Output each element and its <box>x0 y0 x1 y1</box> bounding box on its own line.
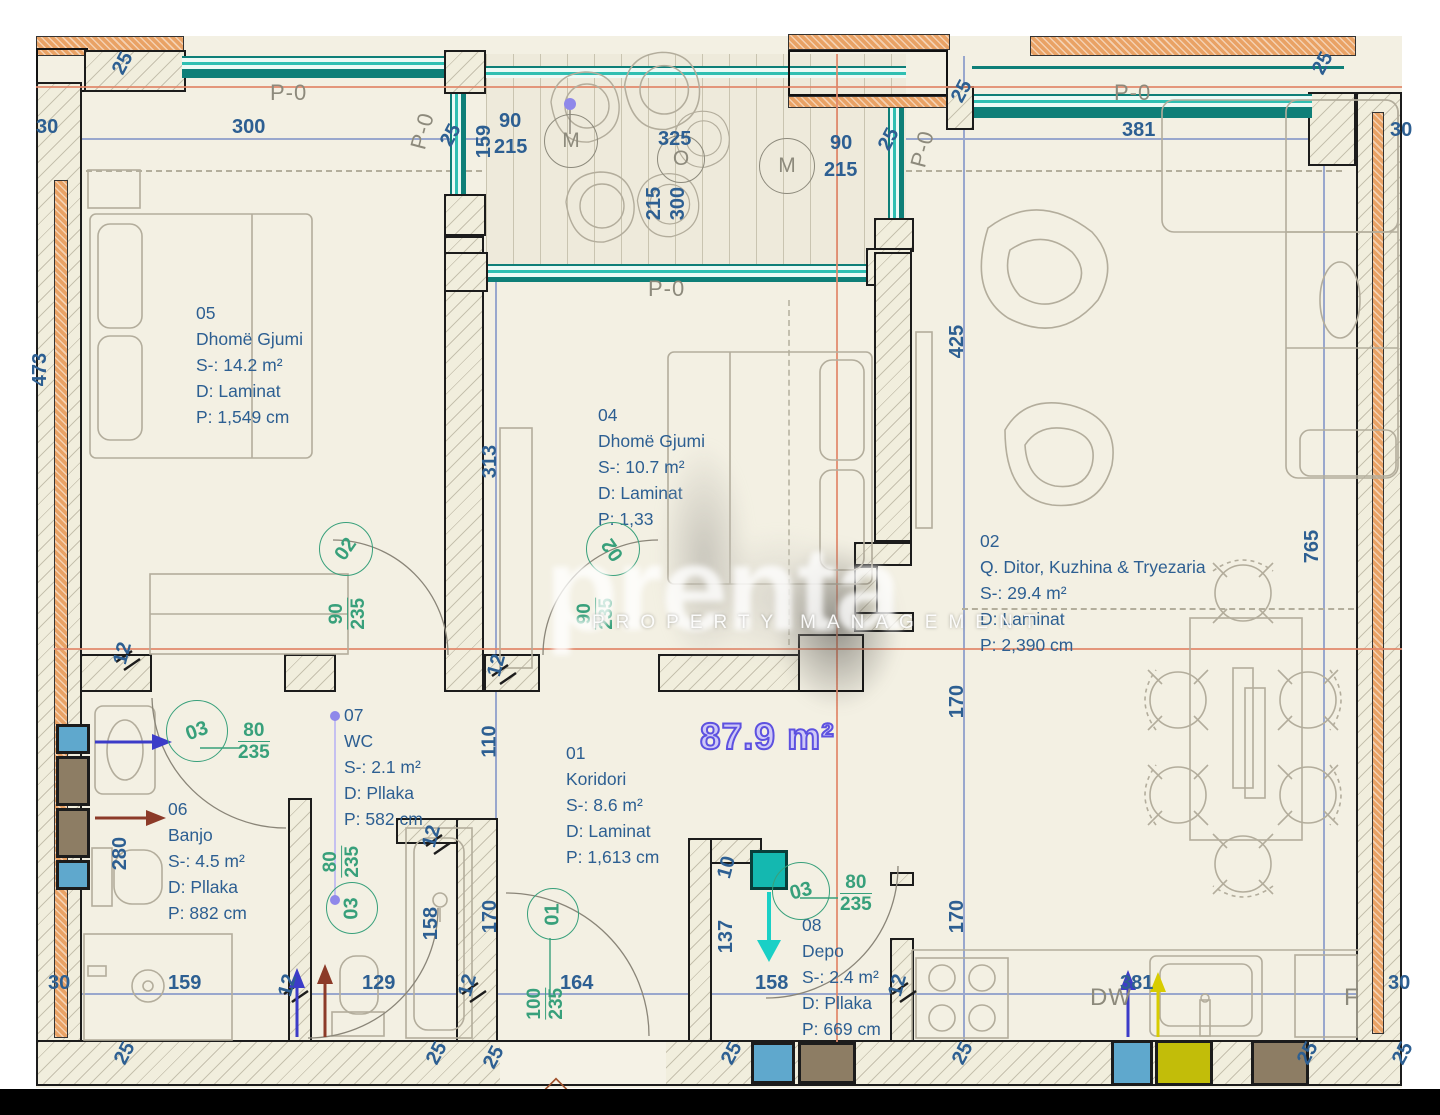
wall-segment <box>444 194 486 236</box>
door-height: 235 <box>238 741 270 763</box>
window-label: P-0 <box>1114 80 1151 106</box>
door-width: 90 <box>326 603 347 624</box>
insulation-strip <box>54 180 68 1038</box>
window <box>888 108 904 218</box>
window-label: P-0 <box>270 80 307 106</box>
room-area: S-: 10.7 m² <box>598 454 705 480</box>
door-number: 03 <box>787 877 814 905</box>
room-name: WC <box>344 728 423 754</box>
dim-label: 381 <box>1120 972 1153 995</box>
door-width: 80 <box>243 720 264 741</box>
dim-label: 280 <box>109 837 132 870</box>
dim-label: 30 <box>1390 119 1412 142</box>
wall-segment <box>1308 92 1356 166</box>
shaft-blue <box>751 1042 795 1084</box>
concrete-column <box>798 634 864 692</box>
dim-line <box>963 56 965 1040</box>
door-size: 90235 <box>326 598 370 630</box>
dim-label: 159 <box>168 972 201 995</box>
insulation-strip <box>1372 112 1384 1034</box>
room-id: 04 <box>598 402 705 428</box>
dim-label: 158 <box>755 972 788 995</box>
window <box>182 56 450 78</box>
door-tag: 01 <box>527 888 579 940</box>
wall-segment <box>288 798 312 1042</box>
room-floor: D: Pllaka <box>802 990 881 1016</box>
section-line <box>788 300 790 645</box>
shaft-brown <box>56 808 90 858</box>
dim-label: 30 <box>36 116 58 139</box>
marker-circle-m: M <box>544 114 598 168</box>
shaft-blue <box>56 860 90 890</box>
wall-segment <box>874 218 914 252</box>
dim-label: 473 <box>29 353 52 386</box>
wall-segment <box>854 542 912 566</box>
wall-segment <box>854 612 914 632</box>
dim-label: 110 <box>479 725 502 757</box>
axis-line <box>36 86 1402 88</box>
dim-label: 30 <box>48 972 70 995</box>
room-perimeter: P: 1,613 cm <box>566 844 659 870</box>
room-label-04: 04 Dhomë Gjumi S-: 10.7 m² D: Laminat P:… <box>598 402 705 532</box>
entry-opening <box>500 1042 666 1084</box>
room-label-07: 07 WC S-: 2.1 m² D: Pllaka P: 582 cm <box>344 702 423 832</box>
dim-label: 129 <box>362 972 395 995</box>
window-sill-line <box>972 66 1344 69</box>
door-height: 235 <box>347 598 369 630</box>
door-tag: 03 <box>772 862 830 920</box>
total-area: 87.9 m² <box>700 716 835 758</box>
room-area: S-: 8.6 m² <box>566 792 659 818</box>
dim-label: 215 <box>494 136 527 159</box>
door-tag: 02 <box>586 522 640 576</box>
room-id: 02 <box>980 528 1206 554</box>
shaft-brown <box>798 1042 856 1084</box>
dim-label: 313 <box>479 445 502 478</box>
wall-segment <box>658 654 800 692</box>
shaft-olive <box>1155 1040 1213 1086</box>
room-name: Dhomë Gjumi <box>196 326 303 352</box>
door-width: 80 <box>845 872 866 893</box>
shaft-blue <box>1111 1040 1153 1086</box>
door-width: 100 <box>524 988 545 1020</box>
fridge-label: F <box>1344 984 1360 1012</box>
room-floor: D: Pllaka <box>344 780 423 806</box>
dim-label: 765 <box>1301 530 1324 563</box>
insulation-strip <box>788 96 948 108</box>
door-number: 03 <box>183 716 212 745</box>
room-id: 06 <box>168 796 247 822</box>
room-id: 05 <box>196 300 303 326</box>
concrete-column <box>788 50 948 96</box>
dim-line <box>1323 92 1325 1040</box>
dim-label: 170 <box>946 900 969 933</box>
door-size: 80235 <box>238 720 270 764</box>
marker-letter: M <box>562 129 580 153</box>
insulation-strip <box>1030 36 1356 56</box>
door-axis-dot <box>330 711 340 721</box>
floor-plan: P-0 P-0 P-0 P-0 P-0 M O M DW F 05 Dhomë … <box>0 0 1440 1115</box>
room-area: S-: 4.5 m² <box>168 848 247 874</box>
room-name: Depo <box>802 938 881 964</box>
room-name: Dhomë Gjumi <box>598 428 705 454</box>
dim-label: 170 <box>946 685 969 718</box>
door-jamb <box>890 872 914 886</box>
door-number: 01 <box>542 903 565 925</box>
door-height: 235 <box>595 598 617 630</box>
dim-label: 215 <box>643 187 666 220</box>
door-height: 235 <box>840 893 872 915</box>
dim-label: 159 <box>473 125 496 158</box>
door-size: 80235 <box>840 872 872 916</box>
dim-label: 300 <box>667 187 690 220</box>
door-number: 03 <box>341 897 364 919</box>
dim-label: 90 <box>499 110 521 133</box>
wall-segment <box>874 252 912 542</box>
dim-label: 137 <box>715 920 738 953</box>
room-area: S-: 14.2 m² <box>196 352 303 378</box>
door-tag: 03 <box>326 882 378 934</box>
room-area: S-: 2.1 m² <box>344 754 423 780</box>
room-floor: D: Laminat <box>598 480 705 506</box>
dim-label: 170 <box>479 900 502 933</box>
door-width: 90 <box>574 603 595 624</box>
dim-label: 90 <box>830 132 852 155</box>
room-name: Q. Ditor, Kuzhina & Tryezaria <box>980 554 1206 580</box>
wall-segment <box>444 236 484 692</box>
room-label-02: 02 Q. Ditor, Kuzhina & Tryezaria S-: 29.… <box>980 528 1206 658</box>
room-floor: D: Laminat <box>566 818 659 844</box>
bottom-band <box>0 1089 1440 1115</box>
door-tag: 03 <box>166 700 228 762</box>
marker-circle-m: M <box>759 138 815 194</box>
room-name: Koridori <box>566 766 659 792</box>
room-label-05: 05 Dhomë Gjumi S-: 14.2 m² D: Laminat P:… <box>196 300 303 430</box>
marker-dot <box>564 98 576 110</box>
dim-label: 30 <box>1388 972 1410 995</box>
axis-line <box>836 54 838 1042</box>
room-perimeter: P: 2,390 cm <box>980 632 1206 658</box>
room-label-01: 01 Koridori S-: 8.6 m² D: Laminat P: 1,6… <box>566 740 659 870</box>
room-label-08: 08 Depo S-: 2.4 m² D: Pllaka P: 669 cm <box>802 912 881 1042</box>
room-id: 01 <box>566 740 659 766</box>
room-perimeter: P: 1,549 cm <box>196 404 303 430</box>
door-number: 02 <box>597 533 629 564</box>
insulation-strip <box>788 34 950 50</box>
wall-segment <box>854 566 878 614</box>
door-number: 02 <box>330 533 362 564</box>
room-floor: D: Laminat <box>196 378 303 404</box>
dim-label: 381 <box>1122 119 1155 142</box>
dim-line <box>36 993 1402 995</box>
dim-label: 215 <box>824 159 857 182</box>
marker-letter: M <box>778 154 796 178</box>
window-label: P-0 <box>648 276 685 302</box>
room-label-06: 06 Banjo S-: 4.5 m² D: Pllaka P: 882 cm <box>168 796 247 926</box>
wall-segment <box>284 654 336 692</box>
wall-segment <box>688 838 712 1042</box>
room-floor: D: Laminat <box>980 606 1206 632</box>
room-area: S-: 2.4 m² <box>802 964 881 990</box>
room-floor: D: Pllaka <box>168 874 247 900</box>
room-perimeter: P: 582 cm <box>344 806 423 832</box>
dim-label: 158 <box>420 907 443 940</box>
wall-segment <box>444 252 488 292</box>
room-name: Banjo <box>168 822 247 848</box>
door-size: 90235 <box>574 598 618 630</box>
dim-label: 300 <box>232 116 265 139</box>
room-perimeter: P: 882 cm <box>168 900 247 926</box>
door-size: 80235 <box>320 846 364 878</box>
room-id: 07 <box>344 702 423 728</box>
dim-label: 425 <box>946 325 969 358</box>
dim-label: 325 <box>658 128 691 151</box>
shaft-blue <box>56 724 90 754</box>
room-perimeter: P: 669 cm <box>802 1016 881 1042</box>
shaft-brown <box>56 756 90 806</box>
door-tag: 02 <box>319 522 373 576</box>
dim-label: 164 <box>560 972 593 995</box>
room-area: S-: 29.4 m² <box>980 580 1206 606</box>
door-width: 80 <box>320 851 341 872</box>
door-height: 235 <box>341 846 363 878</box>
